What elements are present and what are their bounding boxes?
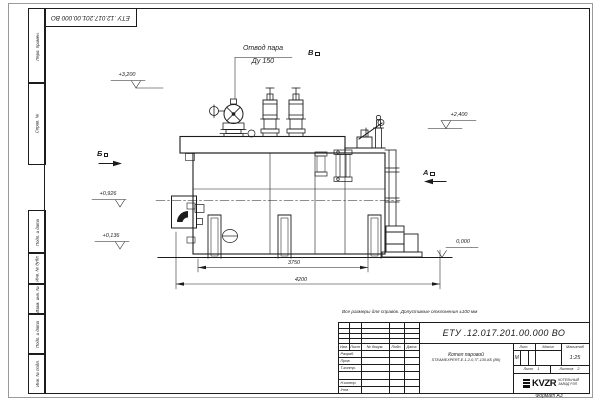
view-marker-v: В — [308, 48, 320, 57]
sign-row-tkontr: Т.контр. — [339, 364, 363, 371]
general-note: Все размеры для справок. Допустимые откл… — [342, 309, 588, 314]
sign-row-prov: Пров. — [339, 357, 363, 364]
margin-box-sprav-no: Справ. № — [28, 82, 46, 165]
margin-box-vzam-inv: Взам. инв. № — [28, 283, 46, 315]
margin-label: Подп. и дата — [35, 219, 40, 246]
divider — [339, 333, 419, 334]
scale-value: 1:25 — [561, 350, 589, 365]
margin-box-podp-data-2: Подп. и дата — [28, 313, 46, 355]
top-rotated-stamp: ЕТУ .12.017.201.00.000 ВО — [44, 8, 137, 27]
elevation-0136: +0,136 — [92, 233, 130, 239]
col-header-list: Лист — [349, 343, 361, 350]
col-header-data: Дата — [404, 343, 419, 350]
col-header-dokum: № докум. — [361, 343, 389, 350]
margin-box-inv-dubl: Инв. № дубл. — [28, 252, 46, 285]
steam-outlet-label-line2: Ду 150 — [243, 58, 283, 65]
dimension-4200-text: 4200 — [281, 277, 321, 283]
lit-header: Лит. — [513, 343, 535, 350]
elevation-0000: 0,000 — [444, 239, 482, 245]
margin-label: Взам. инв. № — [35, 286, 40, 313]
top-stamp-number: ЕТУ .12.017.201.00.000 ВО — [51, 14, 130, 21]
view-letter: А — [423, 168, 428, 177]
margin-label: Инв. № дубл. — [35, 255, 40, 281]
kvzr-logo-text: KVZR — [532, 378, 556, 389]
sheet-label: Лист — [524, 367, 534, 371]
margin-label: Инв. № подл. — [35, 360, 40, 387]
organization-name: КОТЕЛЬНЫЙ ЗАВОД РЭП — [558, 379, 579, 387]
sign-row-utv: Утв. — [339, 386, 363, 393]
margin-label: Подп. и дата — [35, 321, 40, 348]
view-marker-b: Б — [97, 149, 108, 158]
divider — [520, 350, 521, 365]
view-marker-box — [315, 52, 320, 57]
view-letter: Б — [97, 149, 102, 158]
elevation-0926: +0,926 — [89, 191, 127, 197]
view-letter: В — [308, 48, 313, 57]
sign-row-nkontr: Н.контр. — [339, 379, 363, 386]
sheet-number: 1 — [537, 367, 539, 371]
dimension-3750-text: 3750 — [274, 260, 314, 266]
divider — [339, 328, 419, 329]
sheets-total-cell: Листов 2 — [550, 365, 589, 373]
margin-box-inv-podl: Инв. № подл. — [28, 353, 46, 394]
product-name-line2: STEAMEXPERT-Е-1,2-0,7Г-130-КБ (ВК) — [432, 358, 501, 362]
sheet-number-cell: Лист 1 — [513, 365, 550, 373]
view-marker-box — [104, 153, 109, 158]
org-line2: ЗАВОД РЭП — [558, 382, 577, 386]
kvzr-logo-icon — [523, 379, 530, 388]
format-label: Формат А3 — [510, 393, 588, 400]
margin-label: Перв. примен. — [35, 32, 40, 61]
mass-header: Масса — [535, 343, 561, 350]
view-marker-box — [430, 172, 435, 177]
divider — [528, 350, 529, 365]
sign-row-razrab: Разраб. — [339, 350, 363, 357]
elevation-3200: +3,200 — [108, 72, 146, 78]
margin-label: Справ. № — [35, 114, 40, 134]
col-header-podp: Подп. — [389, 343, 404, 350]
steam-outlet-label-line1: Отвод пара — [233, 45, 293, 52]
sheets-total: 2 — [577, 367, 579, 371]
sheets-label: Листов — [560, 367, 574, 371]
elevation-2400: +2,400 — [440, 112, 478, 118]
sign-row-blank — [339, 371, 363, 379]
col-header-izm: Изм. — [339, 343, 349, 350]
document-number: ЕТУ .12.017.201.00.000 ВО — [419, 323, 589, 343]
drawing-sheet: { "sheet": { "top_stamp": "ЕТУ .12.017.2… — [0, 0, 600, 400]
margin-box-podp-data-1: Подп. и дата — [28, 210, 46, 254]
scale-header: Масштаб — [561, 343, 589, 350]
title-block: Изм. Лист № докум. Подп. Дата Разраб. Пр… — [338, 322, 590, 394]
view-marker-a: А — [423, 168, 435, 177]
divider — [339, 338, 419, 339]
lit-value: М — [513, 350, 520, 365]
product-name-cell: Котел паровой STEAMEXPERT-Е-1,2-0,7Г-130… — [419, 343, 513, 393]
organization-cell: KVZR КОТЕЛЬНЫЙ ЗАВОД РЭП — [513, 373, 589, 393]
